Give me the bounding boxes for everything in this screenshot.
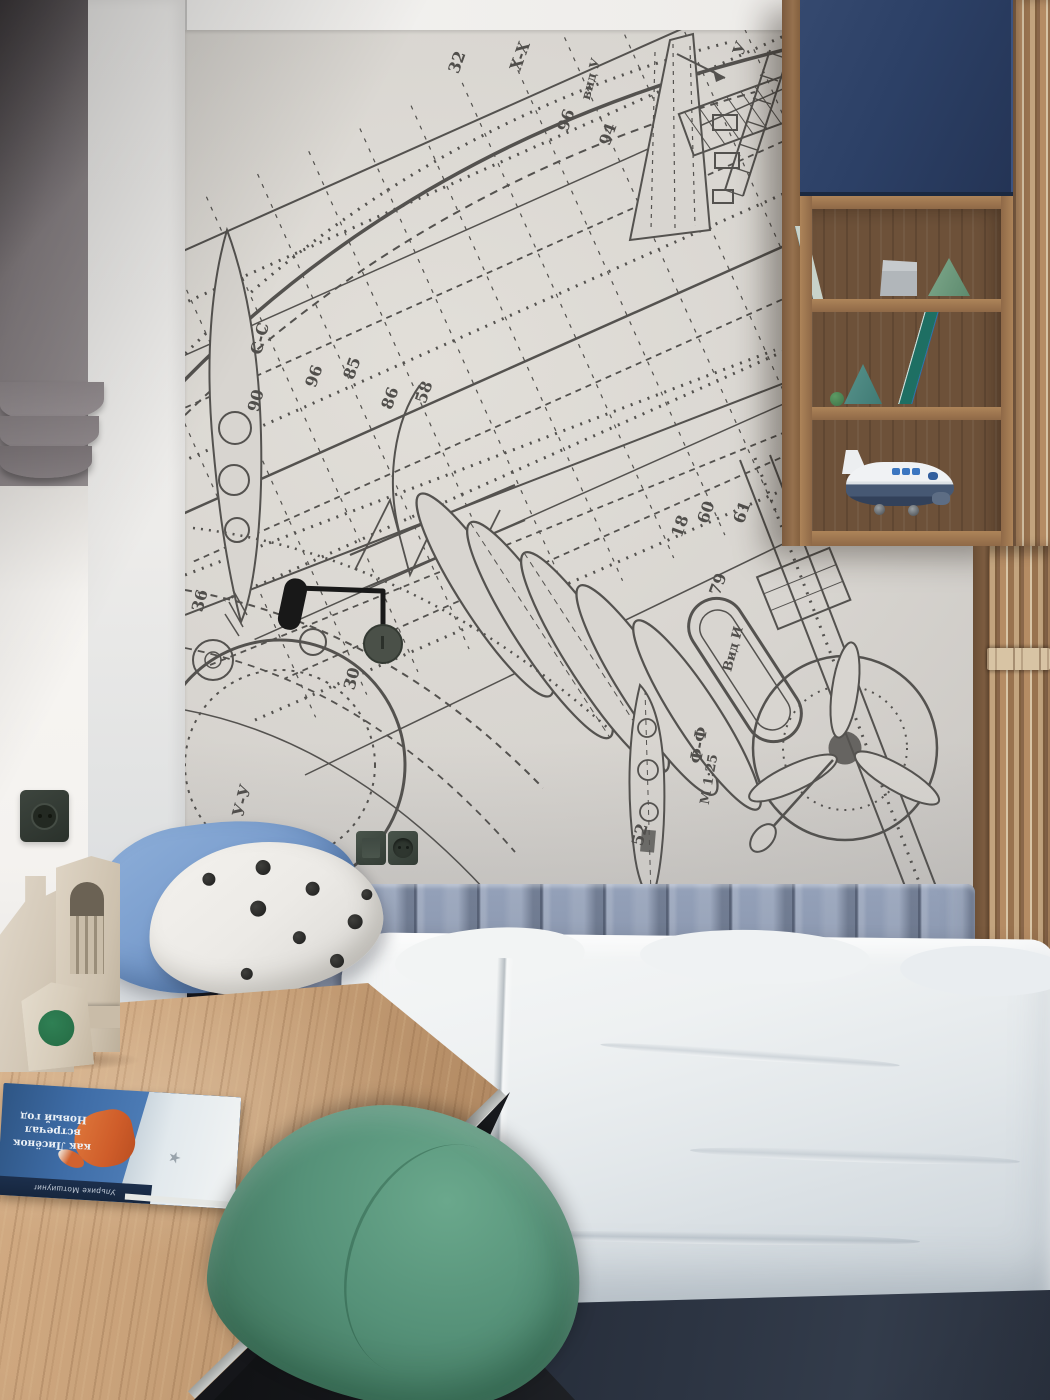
pom-pom: [329, 953, 344, 968]
reading-lamp: [253, 558, 463, 688]
lamp-switch[interactable]: [381, 636, 384, 649]
toy-airplane-wheel: [908, 505, 919, 516]
wall-outlet-left[interactable]: [20, 790, 69, 842]
toy-airplane-window: [902, 468, 910, 475]
pom-pom: [292, 931, 306, 945]
toy-airplane-wheel: [874, 504, 885, 515]
navy-cabinet-door[interactable]: [800, 0, 1013, 196]
outlet-hole: [406, 846, 409, 849]
shelf-side-strip: [1001, 196, 1013, 546]
toy-pyramid-green: [928, 258, 970, 296]
lamp-arm: [297, 588, 383, 628]
toy-airplane-window: [892, 468, 900, 475]
shelf-unit: [782, 0, 1013, 546]
shelf-board: [800, 196, 1013, 209]
toy-cube-gray: [880, 260, 917, 296]
shelf-interior: [800, 196, 1013, 546]
pom-pom: [202, 872, 216, 886]
shelf-board: [800, 531, 1013, 546]
shelf-board: [800, 299, 1013, 312]
pom-pom: [361, 889, 373, 901]
shelf-side-strip: [800, 196, 812, 546]
outlet-hole: [398, 846, 401, 849]
book-title: как Лисёнок встречал Новый год: [4, 1107, 102, 1154]
shelf-board: [800, 407, 1013, 420]
outlet-socket: [31, 803, 58, 830]
wood-slat-partition-top: [1013, 0, 1050, 546]
light-switch[interactable]: [356, 831, 386, 865]
book-spine: [898, 308, 939, 404]
outlet-hole: [38, 814, 42, 818]
slat-horizontal-rail: [987, 648, 1050, 670]
pom-pom: [255, 859, 271, 875]
switch-outlet-combo: [356, 831, 418, 865]
chair-seam: [311, 1117, 559, 1400]
power-outlet[interactable]: [388, 831, 418, 865]
pom-pom: [240, 967, 253, 980]
lamp-head: [276, 576, 309, 632]
toy-ball-green: [830, 392, 844, 406]
kids-bedroom-photo: 32 X-X вид У У 96 94 С-С 90 96 85 86 58 …: [0, 0, 1050, 1400]
shelf-side-panel: [782, 0, 800, 546]
outlet-hole: [48, 814, 52, 818]
toy-airplane-engine: [932, 492, 950, 505]
outlet-socket: [393, 838, 413, 858]
pom-pom: [347, 914, 363, 930]
switch-rocker[interactable]: [362, 838, 380, 858]
toy-arch-pillars: [70, 916, 104, 974]
book-author: Ульрике Мотшиуниг: [33, 1183, 116, 1197]
picture-book[interactable]: ★ как Лисёнок встречал Новый год Ульрике…: [0, 1083, 241, 1209]
toy-airplane-windshield: [928, 472, 938, 480]
toy-airplane-window: [912, 468, 920, 475]
toy-airplane: [836, 448, 962, 514]
toy-pyramid-teal: [844, 364, 882, 404]
pom-pom: [249, 900, 266, 917]
pom-pom: [305, 881, 320, 896]
shelf-books-leaning-right[interactable]: [898, 308, 1014, 404]
toy-green-circle: [37, 1008, 77, 1048]
